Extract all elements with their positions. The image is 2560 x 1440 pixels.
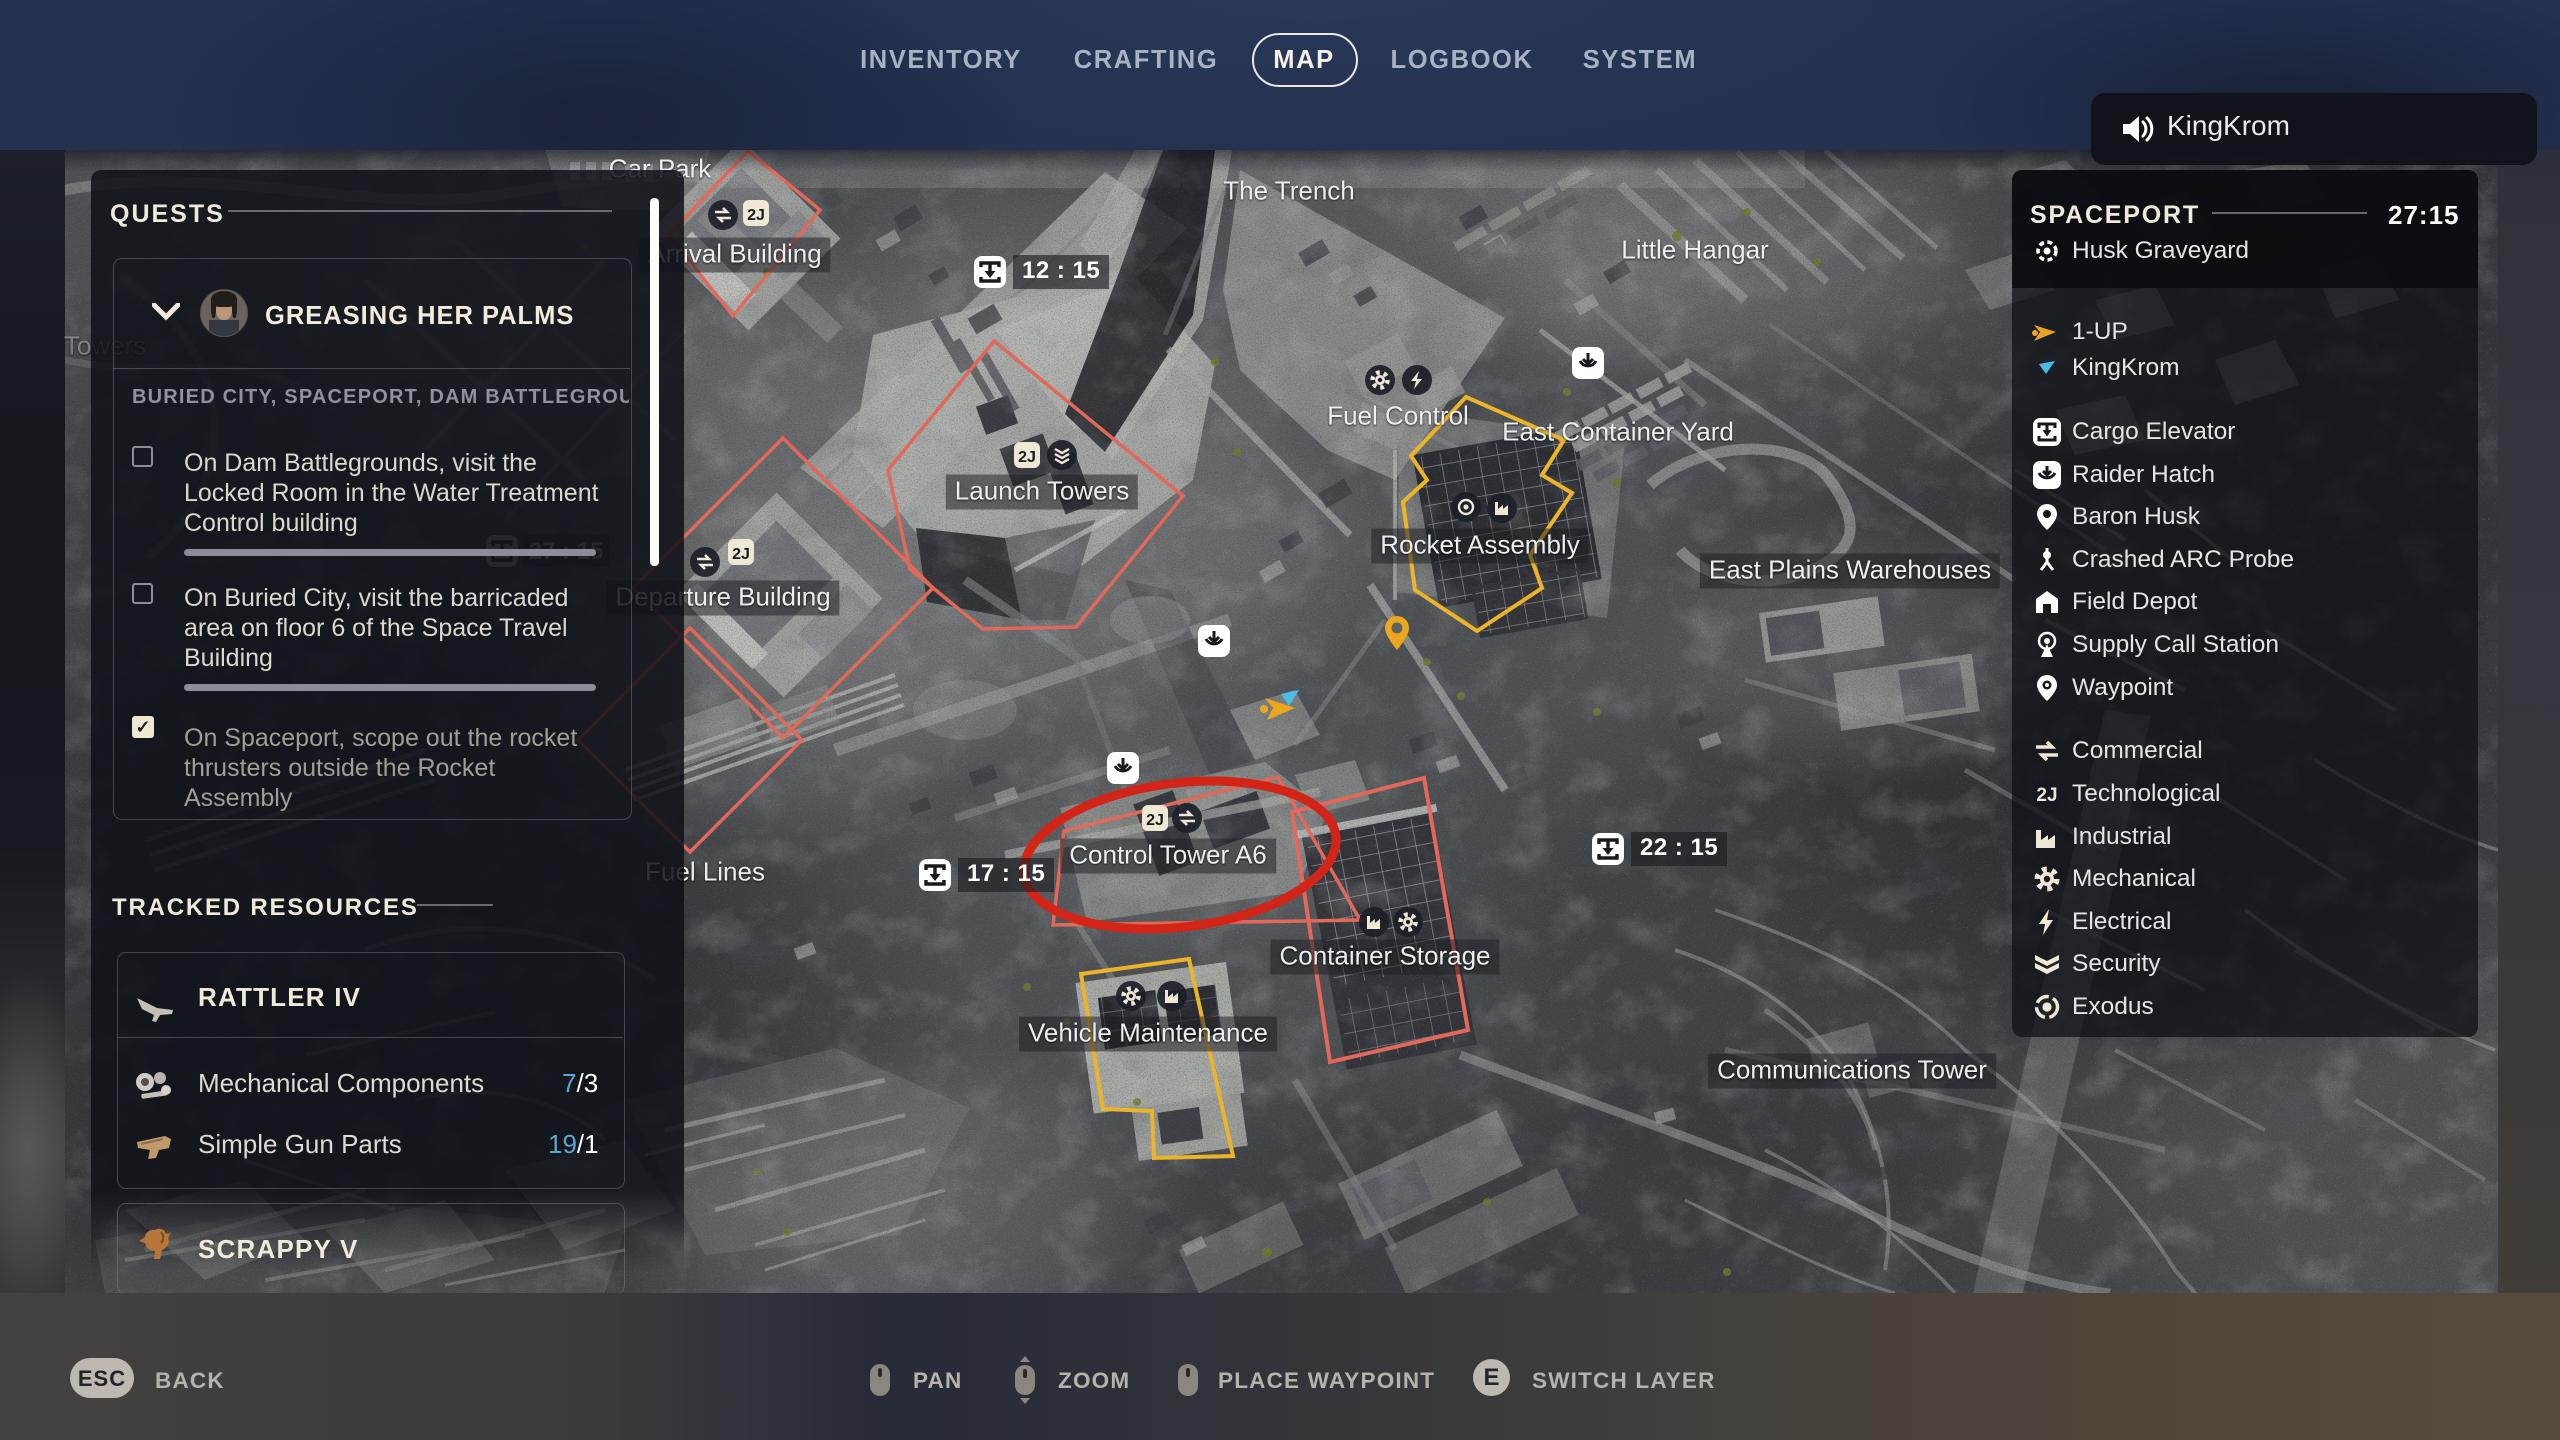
- svg-text:2J: 2J: [1146, 812, 1164, 829]
- svg-text:2J: 2J: [2036, 785, 2057, 806]
- svg-text:2J: 2J: [732, 546, 750, 563]
- svg-text:2J: 2J: [1018, 449, 1036, 466]
- svg-text:2J: 2J: [747, 207, 765, 224]
